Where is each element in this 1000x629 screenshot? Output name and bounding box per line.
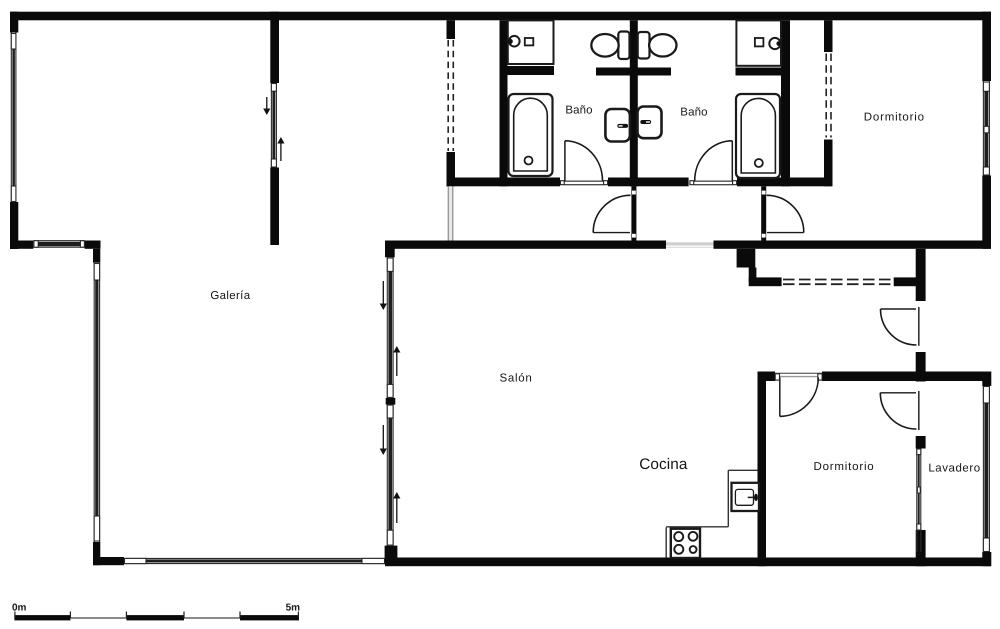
svg-text:Baño: Baño: [680, 107, 707, 119]
svg-text:Baño: Baño: [565, 104, 592, 116]
svg-text:Galería: Galería: [210, 290, 250, 302]
svg-text:0m: 0m: [12, 603, 27, 614]
svg-text:Salón: Salón: [500, 373, 533, 385]
svg-text:Dormitorio: Dormitorio: [864, 112, 925, 124]
svg-text:Dormitorio: Dormitorio: [813, 461, 874, 473]
svg-text:Lavadero: Lavadero: [928, 462, 980, 474]
svg-text:Cocina: Cocina: [639, 456, 688, 473]
